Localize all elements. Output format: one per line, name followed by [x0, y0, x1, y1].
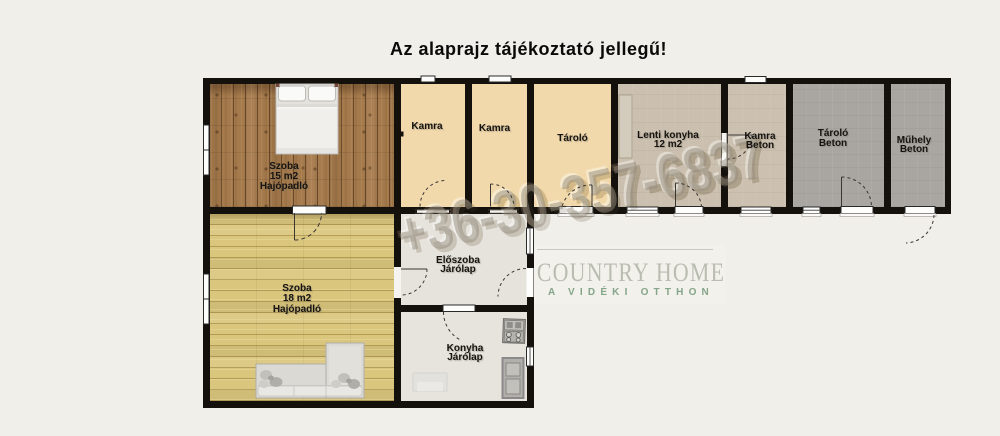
svg-text:A VIDÉKI OTTHON: A VIDÉKI OTTHON: [548, 285, 714, 298]
svg-text:COUNTRY HOME: COUNTRY HOME: [537, 259, 725, 287]
